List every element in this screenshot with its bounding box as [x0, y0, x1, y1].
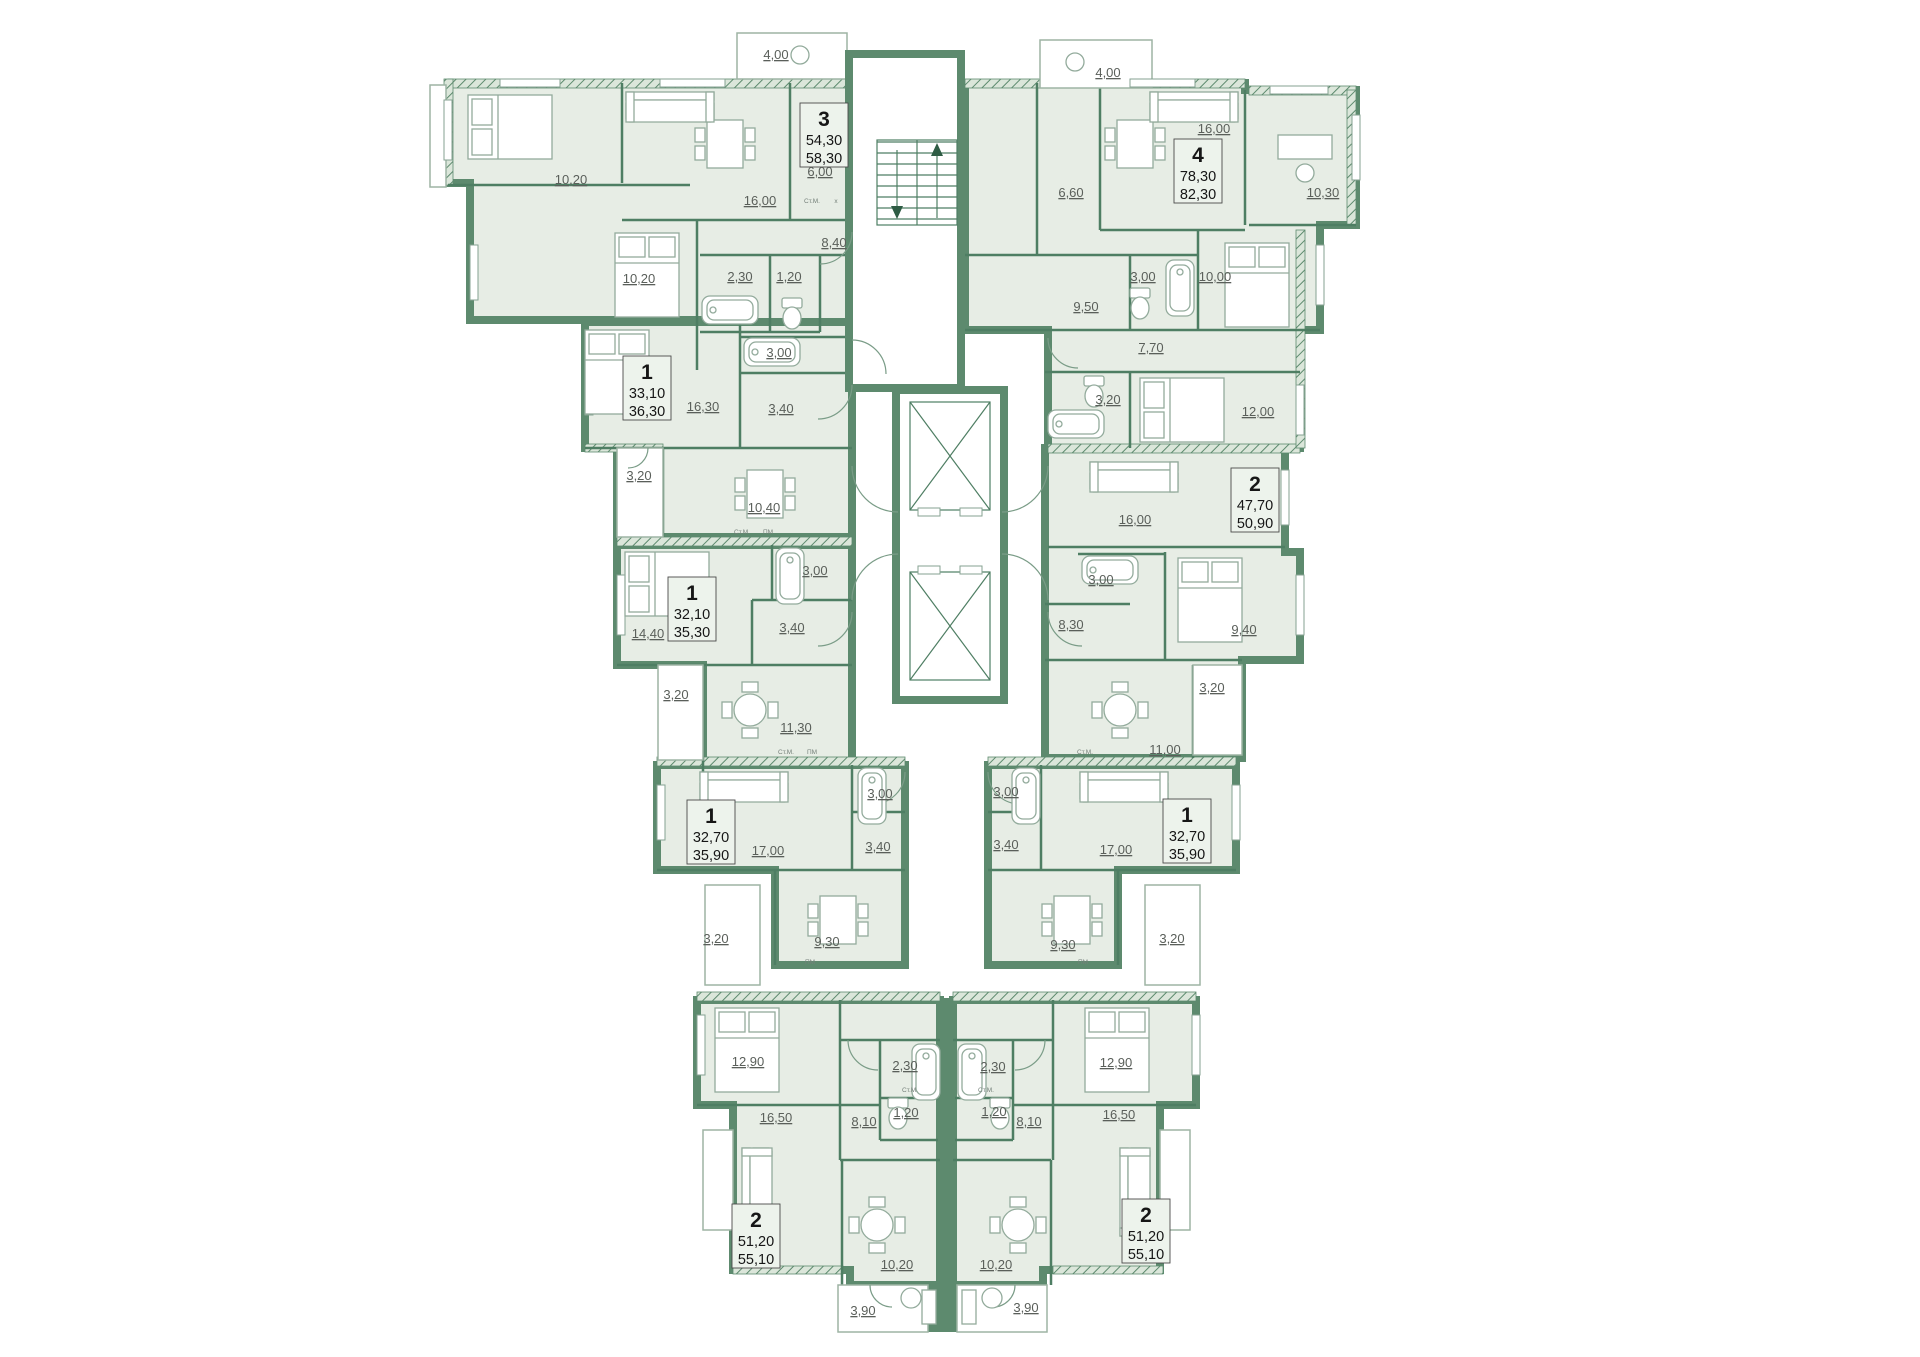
- room-area-label: 3,00: [993, 784, 1018, 799]
- apartment-rooms-count: 1: [705, 805, 717, 828]
- apt-2-mid-right-info-box: 247,7050,90: [1231, 468, 1279, 532]
- balcony-fixture: [791, 46, 809, 64]
- apt-2-bottom-right-info-box: 251,2055,10: [1122, 1199, 1170, 1263]
- room-area-label: 10,20: [623, 271, 656, 286]
- apartment-total-area: 36,30: [629, 404, 665, 420]
- room-area-label: 3,40: [768, 401, 793, 416]
- room-area-label: 8,30: [1058, 617, 1083, 632]
- appliance-label: Ст.М.: [734, 529, 750, 536]
- apartment-rooms-count: 4: [1192, 144, 1204, 167]
- sofa: [1150, 92, 1238, 122]
- balcony-fixture: [962, 1290, 976, 1324]
- toilet: [782, 298, 802, 329]
- room-area-label: 12,90: [1100, 1055, 1133, 1070]
- room-area-label: 3,20: [626, 468, 651, 483]
- apartment-living-area: 32,70: [693, 830, 729, 846]
- room-area-label: 10,20: [980, 1257, 1013, 1272]
- apt-4-top-right-info-box: 478,3082,30: [1174, 139, 1222, 203]
- room-area-label: 2,30: [727, 269, 752, 284]
- room-area-label: 11,30: [780, 720, 812, 735]
- room-area-label: 3,00: [1088, 572, 1113, 587]
- room-area-label: 3,40: [993, 837, 1018, 852]
- apartment-living-area: 32,70: [1169, 829, 1205, 845]
- appliance-label: Ст.М.: [804, 198, 820, 205]
- floor-plan: 354,3058,30478,3082,30133,1036,30247,705…: [0, 0, 1920, 1357]
- room-area-label: 1,20: [776, 269, 801, 284]
- room-area-label: 16,00: [744, 193, 777, 208]
- apartment-total-area: 35,30: [674, 625, 710, 641]
- balcony-fixture: [1066, 53, 1084, 71]
- room-area-label: 9,40: [1231, 622, 1256, 637]
- bed: [1225, 243, 1289, 327]
- room-area-label: 9,30: [814, 934, 839, 949]
- floor-plan-page: 354,3058,30478,3082,30133,1036,30247,705…: [0, 0, 1920, 1357]
- room-area-label: 4,00: [763, 47, 788, 62]
- room-area-label: 3,00: [1130, 269, 1155, 284]
- apartment-living-area: 51,20: [1128, 1229, 1164, 1245]
- room-area-label: 3,40: [779, 620, 804, 635]
- room-area-label: 3,00: [766, 345, 791, 360]
- bed: [1140, 378, 1224, 442]
- apt-1-lower-left-info-box: 132,7035,90: [687, 800, 735, 864]
- room-area-label: 8,40: [821, 235, 846, 250]
- room-area-label: 2,30: [892, 1058, 917, 1073]
- elevator-core: [896, 390, 1004, 700]
- apartment-total-area: 35,90: [693, 848, 729, 864]
- room-area-label: 8,10: [1016, 1114, 1041, 1129]
- apartment-total-area: 55,10: [1128, 1247, 1164, 1263]
- room-area-label: 4,00: [1095, 65, 1120, 80]
- room-area-label: 16,50: [760, 1110, 793, 1125]
- room-area-label: 1,20: [893, 1105, 918, 1120]
- apartment-rooms-count: 1: [1181, 804, 1193, 827]
- apt-1-upper-left-info-box: 133,1036,30: [623, 356, 671, 420]
- room-area-label: 12,00: [1242, 404, 1275, 419]
- balcony-3-20-d: [1193, 665, 1242, 755]
- apartment-rooms-count: 3: [818, 108, 830, 131]
- apartment-living-area: 51,20: [738, 1234, 774, 1250]
- balcony-3-20-a: [617, 448, 663, 537]
- balcony-3-20-b: [658, 665, 703, 760]
- room-area-label: 8,10: [851, 1114, 876, 1129]
- room-area-label: 3,40: [865, 839, 890, 854]
- room-area-label: 10,20: [555, 172, 588, 187]
- room-area-label: 17,00: [1100, 842, 1133, 857]
- apartment-rooms-count: 2: [1249, 473, 1261, 496]
- apartment-living-area: 54,30: [806, 133, 842, 149]
- apartment-total-area: 35,90: [1169, 847, 1205, 863]
- room-area-label: 16,30: [687, 399, 720, 414]
- room-area-label: 7,70: [1138, 340, 1163, 355]
- room-area-label: 3,00: [867, 786, 892, 801]
- apartment-living-area: 33,10: [629, 386, 665, 402]
- room-area-label: 6,60: [1058, 185, 1083, 200]
- appliance-label: ПМ: [805, 959, 815, 966]
- bathtub: [1166, 260, 1194, 316]
- apartment-rooms-count: 2: [1140, 1204, 1152, 1227]
- apartment-living-area: 78,30: [1180, 169, 1216, 185]
- room-area-label: 10,40: [748, 500, 781, 515]
- sofa: [1080, 772, 1168, 802]
- apt-2-bottom-left-info-box: 251,2055,10: [732, 1204, 780, 1268]
- bed: [715, 1008, 779, 1092]
- room-area-label: 3,20: [1199, 680, 1224, 695]
- bed: [468, 95, 552, 159]
- apartment-total-area: 50,90: [1237, 516, 1273, 532]
- appliance-label: Ст.М.: [1077, 749, 1093, 756]
- room-area-label: 16,00: [1119, 512, 1152, 527]
- room-area-label: 3,90: [1013, 1300, 1038, 1315]
- room-area-label: 12,90: [732, 1054, 765, 1069]
- toilet: [1130, 288, 1150, 319]
- appliance-label: Ст.М.: [902, 1087, 918, 1094]
- appliance-label: ПМ: [763, 529, 773, 536]
- stair-core: [849, 54, 961, 388]
- room-area-label: 3,20: [703, 931, 728, 946]
- appliance-label: Ст.М.: [778, 749, 794, 756]
- sofa: [626, 92, 714, 122]
- room-area-label: 2,30: [980, 1059, 1005, 1074]
- bed: [1085, 1008, 1149, 1092]
- room-area-label: 11,00: [1149, 742, 1181, 757]
- sofa: [700, 772, 788, 802]
- room-area-label: 3,20: [1159, 931, 1184, 946]
- balcony-fixture: [922, 1290, 936, 1324]
- room-area-label: 3,90: [850, 1303, 875, 1318]
- balcony-strip-left: [703, 1130, 733, 1230]
- room-area-label: 3,20: [663, 687, 688, 702]
- room-area-label: 17,00: [752, 843, 785, 858]
- apartment-total-area: 55,10: [738, 1252, 774, 1268]
- apt-3-top-left-info-box: 354,3058,30: [800, 103, 848, 167]
- appliance-label: ПМ: [1078, 959, 1088, 966]
- room-area-label: 3,00: [802, 563, 827, 578]
- bathtub: [1048, 410, 1104, 438]
- bathtub: [776, 548, 804, 604]
- apartment-rooms-count: 2: [750, 1209, 762, 1232]
- sofa: [1090, 462, 1178, 492]
- room-area-label: 6,00: [807, 164, 832, 179]
- apt-1-lower-right-info-box: 132,7035,90: [1163, 799, 1211, 863]
- room-area-label: 10,30: [1307, 185, 1340, 200]
- room-area-label: 16,00: [1198, 121, 1231, 136]
- room-area-label: 1,20: [981, 1104, 1006, 1119]
- apartment-living-area: 32,10: [674, 607, 710, 623]
- bathtub: [702, 296, 758, 324]
- apartment-living-area: 47,70: [1237, 498, 1273, 514]
- balcony-fixture: [901, 1288, 921, 1308]
- apt-1-mid-left-info-box: 132,1035,30: [668, 577, 716, 641]
- appliance-label: ПМ: [807, 749, 817, 756]
- room-area-label: 14,40: [632, 626, 665, 641]
- apartment-total-area: 82,30: [1180, 187, 1216, 203]
- room-area-label: 10,00: [1199, 269, 1232, 284]
- balcony-fixture: [982, 1288, 1002, 1308]
- apartment-rooms-count: 1: [686, 582, 698, 605]
- room-area-label: 9,30: [1050, 937, 1075, 952]
- center-divider-wall: [940, 998, 953, 1290]
- room-area-label: 9,50: [1073, 299, 1098, 314]
- appliance-label: Ст.М.: [978, 1087, 994, 1094]
- apartment-rooms-count: 1: [641, 361, 653, 384]
- room-area-label: 10,20: [881, 1257, 914, 1272]
- room-area-label: 16,50: [1103, 1107, 1136, 1122]
- room-area-label: 3,20: [1095, 392, 1120, 407]
